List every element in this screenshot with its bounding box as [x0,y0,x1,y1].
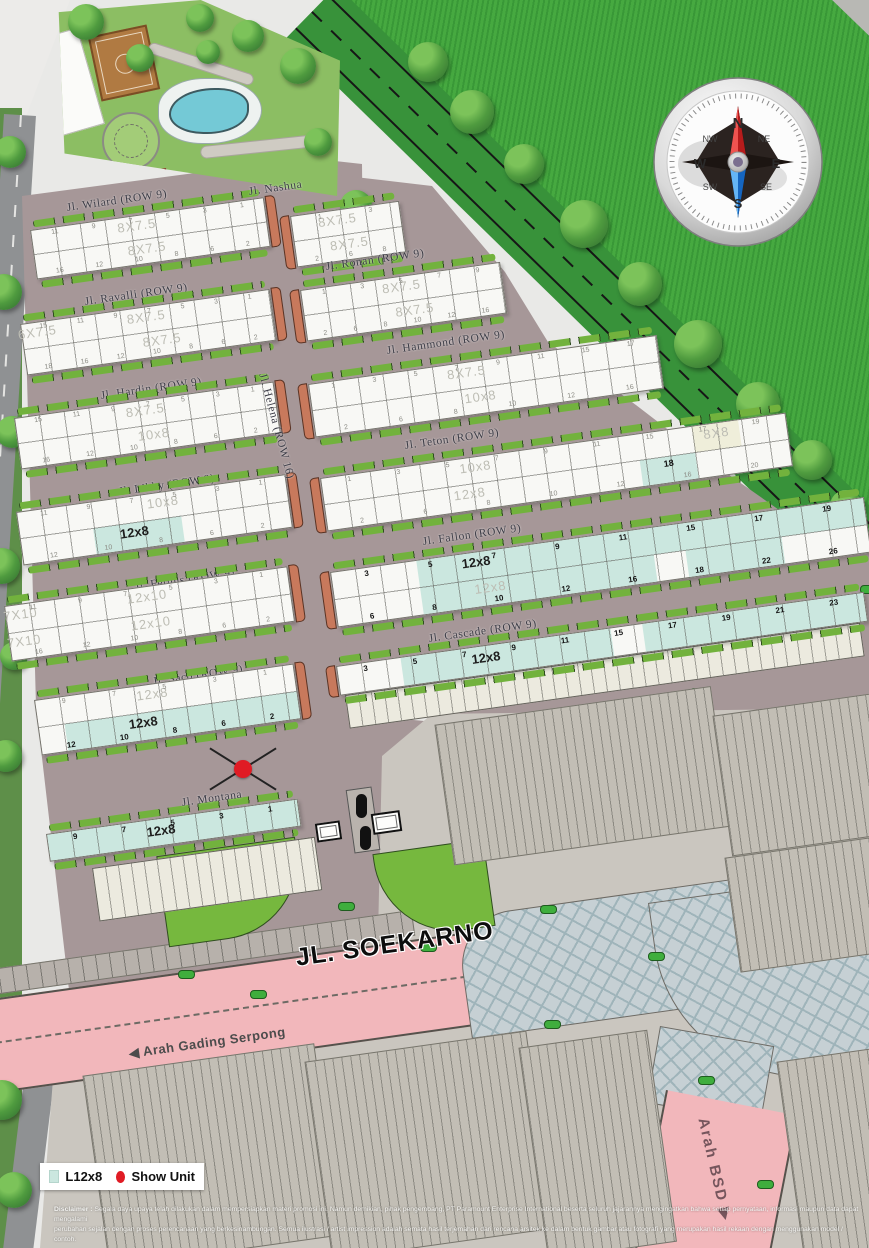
compass-s: S [734,196,743,211]
gate-barrier [356,794,367,818]
overlay: JL. SOEKARNO ◀ Arah Gading Serpong Arah … [0,0,869,1248]
legend: L12x8 Show Unit [40,1163,204,1190]
disclaimer-line2: perubahan sejalan dengan proses perencan… [54,1226,843,1243]
compass-se: SE [760,182,772,192]
disclaimer-line1: Segala daya upaya telah dilakukan dalam … [54,1206,858,1223]
soekarno-street-label: JL. SOEKARNO [294,916,496,972]
disclaimer: Disclaimer : Segala daya upaya telah dil… [54,1205,866,1245]
compass-e: E [772,156,781,171]
compass-hub-center [733,157,743,167]
disclaimer-label: Disclaimer : [54,1206,93,1213]
gate-barrier [360,826,371,850]
compass-sw: SW [703,182,718,192]
legend-show-unit-label: Show Unit [131,1169,195,1184]
show-unit-marker [234,760,252,778]
site-plan: Jl. Wilard (ROW 9)8X7.58X7.5119753116121… [0,0,869,1248]
direction-gading-serpong: ◀ Arah Gading Serpong [128,1024,287,1062]
legend-swatch-label: L12x8 [65,1169,102,1184]
legend-show-unit-icon [116,1171,125,1183]
compass-w: W [694,156,707,171]
compass-rose: N E S W NE SE SW NW [652,76,824,248]
guard-house-left [315,820,342,842]
guard-house-right [371,810,403,835]
legend-swatch-12x8 [49,1170,59,1183]
compass-nw: NW [703,134,718,144]
compass-n: N [733,115,744,132]
compass-ne: NE [758,134,771,144]
